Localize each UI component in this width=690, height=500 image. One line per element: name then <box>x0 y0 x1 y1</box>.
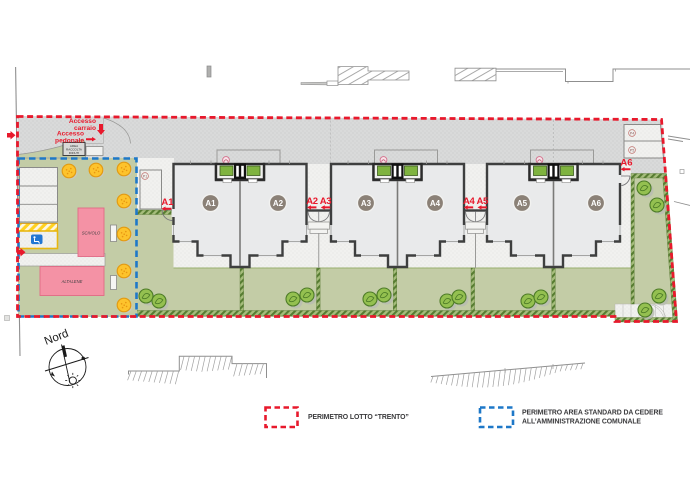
svg-text:A4: A4 <box>430 199 441 208</box>
svg-text:Accesso: Accesso <box>69 118 96 125</box>
svg-text:ALTALENE: ALTALENE <box>61 279 83 284</box>
svg-text:P4: P4 <box>630 132 634 136</box>
svg-text:A1: A1 <box>161 197 174 208</box>
svg-text:A2 A3: A2 A3 <box>306 196 331 207</box>
svg-text:A1: A1 <box>205 199 216 208</box>
svg-text:P1: P1 <box>143 175 147 179</box>
svg-text:A5: A5 <box>517 199 528 208</box>
svg-text:PERIMETRO LOTTO “TRENTO”: PERIMETRO LOTTO “TRENTO” <box>308 414 409 421</box>
svg-text:RIFIUTI: RIFIUTI <box>69 151 80 155</box>
svg-text:A4 A5: A4 A5 <box>463 196 489 207</box>
svg-text:A2: A2 <box>273 199 284 208</box>
svg-text:P5: P5 <box>630 149 634 153</box>
svg-text:Accesso: Accesso <box>57 131 84 138</box>
svg-text:SCIVOLO: SCIVOLO <box>82 231 101 236</box>
svg-text:A6: A6 <box>591 199 602 208</box>
svg-text:ALL’AMMINISTRAZIONE COMUNALE: ALL’AMMINISTRAZIONE COMUNALE <box>522 419 641 426</box>
svg-text:PERIMETRO AREA STANDARD DA CED: PERIMETRO AREA STANDARD DA CEDERE <box>522 410 663 417</box>
svg-text:A6: A6 <box>620 158 632 169</box>
svg-text:pedonale: pedonale <box>55 138 84 145</box>
svg-text:A3: A3 <box>361 199 372 208</box>
